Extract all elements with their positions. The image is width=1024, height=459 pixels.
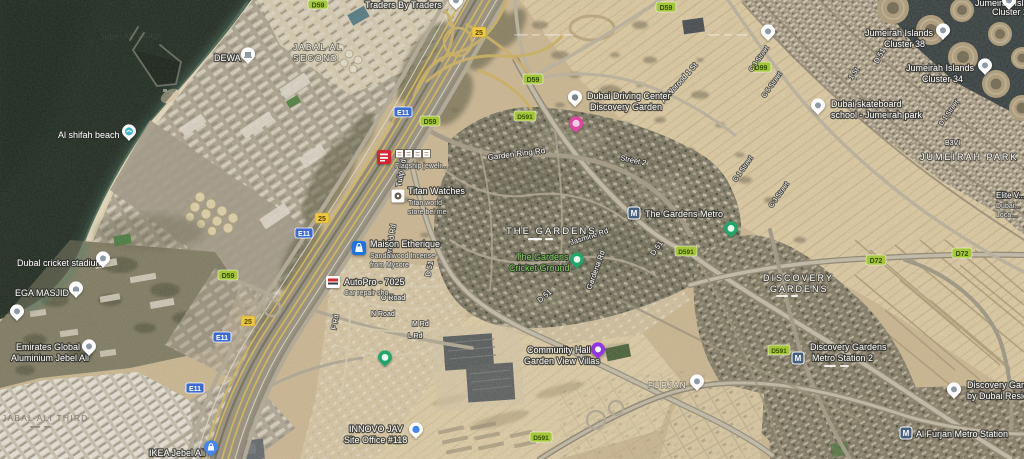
svg-text:B3VI: B3VI	[945, 140, 960, 147]
svg-text:JABAL ALI THIRD: JABAL ALI THIRD	[2, 413, 89, 423]
svg-text:JUMEIRAH PARK: JUMEIRAH PARK	[920, 152, 1018, 162]
svg-text:Discovery Gardens: Discovery Gardens	[810, 342, 887, 352]
svg-text:Discovery Gard...: Discovery Gard...	[967, 380, 1024, 390]
svg-text:E11: E11	[397, 110, 409, 117]
svg-text:by Dubai Resid...: by Dubai Resid...	[967, 391, 1024, 401]
svg-text:D59: D59	[660, 5, 673, 12]
svg-text:D72: D72	[870, 258, 883, 265]
svg-text:D72: D72	[956, 251, 969, 258]
svg-text:from Mysore: from Mysore	[370, 262, 409, 269]
svg-text:JABAL AL: JABAL AL	[293, 42, 343, 52]
svg-text:Dubal cricket stadium: Dubal cricket stadium	[17, 258, 103, 268]
svg-text:E11: E11	[216, 335, 228, 342]
svg-text:INNOVO JAV: INNOVO JAV	[349, 424, 403, 434]
svg-text:N Road: N Road	[371, 311, 395, 318]
svg-text:EGA MASJID: EGA MASJID	[15, 288, 70, 298]
svg-text:Dubai...: Dubai...	[996, 203, 1020, 210]
svg-text:Titan Watches: Titan Watches	[408, 186, 465, 196]
svg-text:AutoPro - 7025: AutoPro - 7025	[344, 277, 405, 287]
svg-text:Al Furjan Metro Station: Al Furjan Metro Station	[916, 429, 1008, 439]
svg-text:store bei me: store bei me	[408, 209, 447, 216]
svg-text:The Gardens Metro: The Gardens Metro	[645, 209, 723, 219]
svg-text:Cluster 38: Cluster 38	[884, 39, 925, 49]
svg-text:Traders By Traders: Traders By Traders	[365, 0, 442, 10]
svg-text:D591: D591	[517, 114, 533, 121]
svg-text:Cricket Ground: Cricket Ground	[509, 263, 570, 273]
svg-text:E11: E11	[298, 231, 310, 238]
svg-text:25: 25	[475, 30, 483, 37]
svg-text:D59: D59	[312, 3, 325, 10]
svg-text:Loca...: Loca...	[996, 212, 1017, 219]
svg-text:IKEA Jebel Ali: IKEA Jebel Ali	[149, 448, 205, 458]
svg-text:D591: D591	[533, 435, 549, 442]
svg-text:FURJAN: FURJAN	[648, 381, 687, 390]
svg-text:Garden View Villas: Garden View Villas	[524, 356, 600, 366]
svg-text:Elite V...: Elite V...	[996, 191, 1024, 200]
svg-text:Jumeirah Islands: Jumeirah Islands	[906, 63, 975, 73]
svg-text:Al shifah beach: Al shifah beach	[58, 130, 120, 140]
svg-text:Jumeirah Islands: Jumeirah Islands	[865, 28, 934, 38]
svg-text:DEWA: DEWA	[214, 53, 241, 63]
svg-text:Discovery Garden: Discovery Garden	[590, 102, 662, 112]
svg-text:Emirates Global: Emirates Global	[16, 342, 80, 352]
svg-text:M Rd: M Rd	[412, 321, 429, 328]
svg-text:Car repair sho...: Car repair sho...	[344, 290, 394, 297]
svg-text:Aluminium Jebel Ali: Aluminium Jebel Ali	[11, 353, 89, 363]
svg-text:D59: D59	[222, 273, 235, 280]
svg-text:L Rd: L Rd	[408, 333, 423, 340]
svg-text:E11: E11	[189, 386, 201, 393]
svg-text:Site Office #118: Site Office #118	[344, 435, 407, 445]
svg-text:Community Hall: Community Hall	[527, 345, 591, 355]
svg-text:school - Jumeirah park: school - Jumeirah park	[831, 110, 923, 120]
svg-text:DISCOVERY: DISCOVERY	[763, 273, 834, 283]
svg-text:The Gardens: The Gardens	[516, 252, 569, 262]
svg-text:25: 25	[244, 319, 252, 326]
svg-text:D59: D59	[527, 77, 540, 84]
svg-text:Metro Station 2: Metro Station 2	[812, 353, 873, 363]
svg-text:M: M	[631, 209, 638, 218]
svg-text:D591: D591	[771, 348, 787, 355]
svg-text:25: 25	[318, 216, 326, 223]
svg-text:M: M	[795, 354, 802, 363]
svg-text:Flagship jewelr...: Flagship jewelr...	[395, 163, 447, 170]
svg-text:Dubai skateboard: Dubai skateboard	[831, 99, 902, 109]
svg-text:M: M	[903, 429, 910, 438]
svg-text:GARDENS: GARDENS	[770, 284, 829, 294]
svg-text:Dubai Driving Center: Dubai Driving Center	[587, 91, 671, 101]
svg-text:Sandalwood Incense: Sandalwood Incense	[370, 253, 435, 260]
svg-text:D591: D591	[678, 249, 694, 256]
svg-text:SECOND: SECOND	[293, 53, 338, 63]
svg-text:THE GARDENS: THE GARDENS	[506, 226, 597, 237]
svg-text:Cluster 34: Cluster 34	[922, 74, 963, 84]
svg-text:Titan world: Titan world	[408, 200, 442, 207]
svg-text:Maison Etherique: Maison Etherique	[370, 239, 440, 249]
svg-text:D59: D59	[424, 119, 437, 126]
